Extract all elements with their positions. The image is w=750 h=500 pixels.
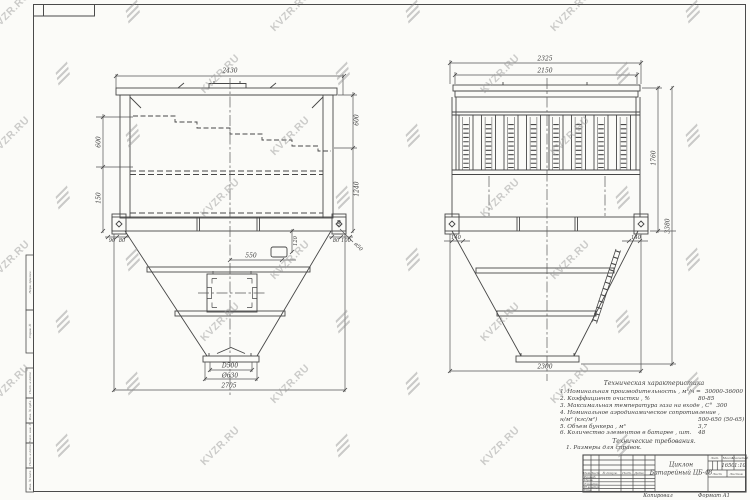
dim-front-left-lower: 150 [96,192,103,203]
title-block-sheet-label: Лист [712,472,721,476]
dimension-lines [96,60,676,392]
dim-front-under-right-a: 80 [333,238,340,244]
tech-specs-title: Техническая характеристика [560,380,748,387]
tech-spec-value: 48 [694,430,748,437]
dim-front-plate: 90 [337,220,343,227]
dim-front-under-right-b: 100 [341,238,351,244]
dim-front-right-upper: 600 [354,114,361,125]
tech-spec-item: 2. Коэффициент очистки , %80-85 [560,396,748,403]
tech-spec-value: 500-650 (50-65) [694,417,748,424]
tech-spec-item: 6. Количество элементов в батарее , шт.4… [560,430,748,437]
dim-side-height-total: 3380 [665,218,672,233]
title-block-podp: Подп. [622,471,632,475]
margin-label-podp1: Подп. и дата [28,372,32,393]
tech-spec-label: 6. Количество элементов в батарее , шт. [560,430,691,437]
dim-front-stub: 120 [293,236,299,246]
tech-spec-label: н/м² (кгс/м²) [560,417,597,424]
drawing-sheet: 2430 600 150 600 1240 90 80 80 100 90 ø5… [0,0,750,500]
dim-front-width-bottom: 2705 [221,383,236,390]
tech-spec-label: 4. Номинальное аэродинамическое сопротив… [560,410,720,417]
title-block-litera-header: Лит. [711,456,720,460]
tech-spec-item: н/м² (кгс/м²)500-650 (50-65) [560,417,748,424]
tech-spec-label: 1. Номинальная производительность , м³/ч… [560,389,701,396]
dimension-ticks [101,61,674,392]
tech-spec-value: 300 [712,403,750,410]
dim-side-height-body: 1760 [651,150,658,165]
tech-spec-label: 2. Коэффициент очистки , % [560,396,650,403]
tech-spec-value [720,410,750,417]
dim-front-outlet-flange: Ø630 [222,372,238,379]
title-block-scale-value: 1:10 [734,463,746,469]
title-block-docnum: № докум. [602,471,617,475]
title-block-product-line1: Циклон [669,462,693,469]
tech-spec-item: 3. Максимальная температура газа на вход… [560,403,748,410]
tech-specs-block: Техническая характеристика 1. Номинальна… [560,380,748,451]
centerlines [198,78,605,395]
title-block-mass-value: 1650 [721,463,734,469]
dim-front-left-upper: 600 [96,136,103,147]
dim-front-right-lower: 1240 [354,181,361,196]
tech-requirements-title: Технические требования. [560,438,748,445]
tech-spec-value: 30000-36000 [701,389,750,396]
dim-side-right-offset: 140 [631,235,641,241]
margin-label-inv-dubl: Инв. № дубл. [28,400,32,420]
dim-front-width-top: 2430 [222,68,237,75]
dim-front-under-left-a: 90 [109,238,116,244]
dim-front-offset: 550 [245,253,256,260]
title-block-role-utv: Утв. [584,488,592,492]
title-block-scale-header: Масштаб [732,456,748,460]
footer-format-label: Формат А1 [698,493,730,499]
dim-side-left-offset: 140 [451,235,461,241]
tech-spec-value: 80-85 [694,396,748,403]
title-block-data: Дата [634,471,643,475]
margin-label-podp2: Подп. и дата [28,444,32,465]
dim-front-outlet-square: D500 [222,363,238,370]
margin-label-vzam: Взам. инв. № [28,423,32,443]
tech-spec-label: 3. Максимальная температура газа на вход… [560,403,712,410]
tech-spec-item: 4. Номинальное аэродинамическое сопротив… [560,410,748,417]
side-view [445,82,648,362]
dim-front-under-left-b: 80 [119,238,126,244]
front-view [112,81,346,362]
dim-side-width-inner: 2150 [537,68,552,75]
margin-label-sprav: Справ. № [28,324,32,338]
dim-side-width-bottom: 2300 [537,364,552,371]
tech-requirements-note: 1. Размеры для справок. [566,445,748,451]
title-block-list: Лист [590,471,599,475]
margin-label-inv-podl: Инв. № подл. [28,470,32,491]
dim-side-width-top: 2325 [537,56,552,63]
footer-copied-label: Копировал [643,493,673,499]
tech-spec-item: 1. Номинальная производительность , м³/ч… [560,389,748,396]
title-block-sheets-label: Листов [729,472,742,476]
margin-label-perv: Перв. примен. [28,271,32,294]
title-block-product-line2: Батарейный ЦБ-48 [650,470,712,477]
tech-spec-value: 3,7 [694,424,748,431]
